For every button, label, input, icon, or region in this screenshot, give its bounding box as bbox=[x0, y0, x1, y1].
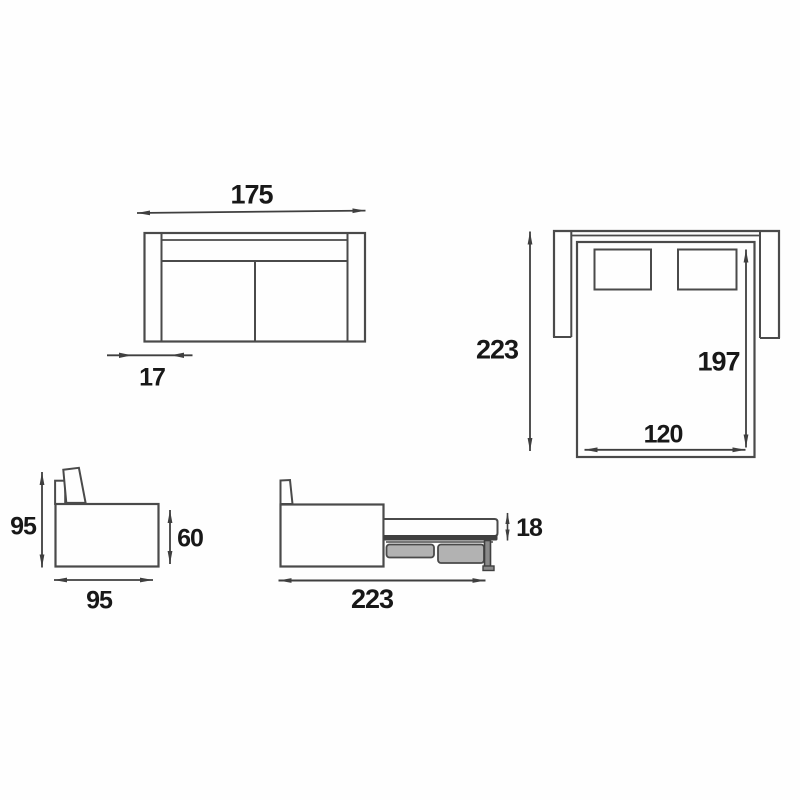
svg-text:120: 120 bbox=[644, 421, 683, 449]
svg-text:60: 60 bbox=[177, 525, 203, 553]
svg-text:95: 95 bbox=[86, 587, 113, 615]
svg-text:18: 18 bbox=[516, 514, 543, 542]
svg-text:223: 223 bbox=[351, 584, 394, 614]
svg-text:17: 17 bbox=[139, 364, 165, 392]
svg-text:95: 95 bbox=[10, 513, 37, 541]
svg-text:223: 223 bbox=[476, 335, 519, 365]
svg-text:197: 197 bbox=[697, 347, 739, 377]
svg-text:175: 175 bbox=[230, 180, 273, 210]
